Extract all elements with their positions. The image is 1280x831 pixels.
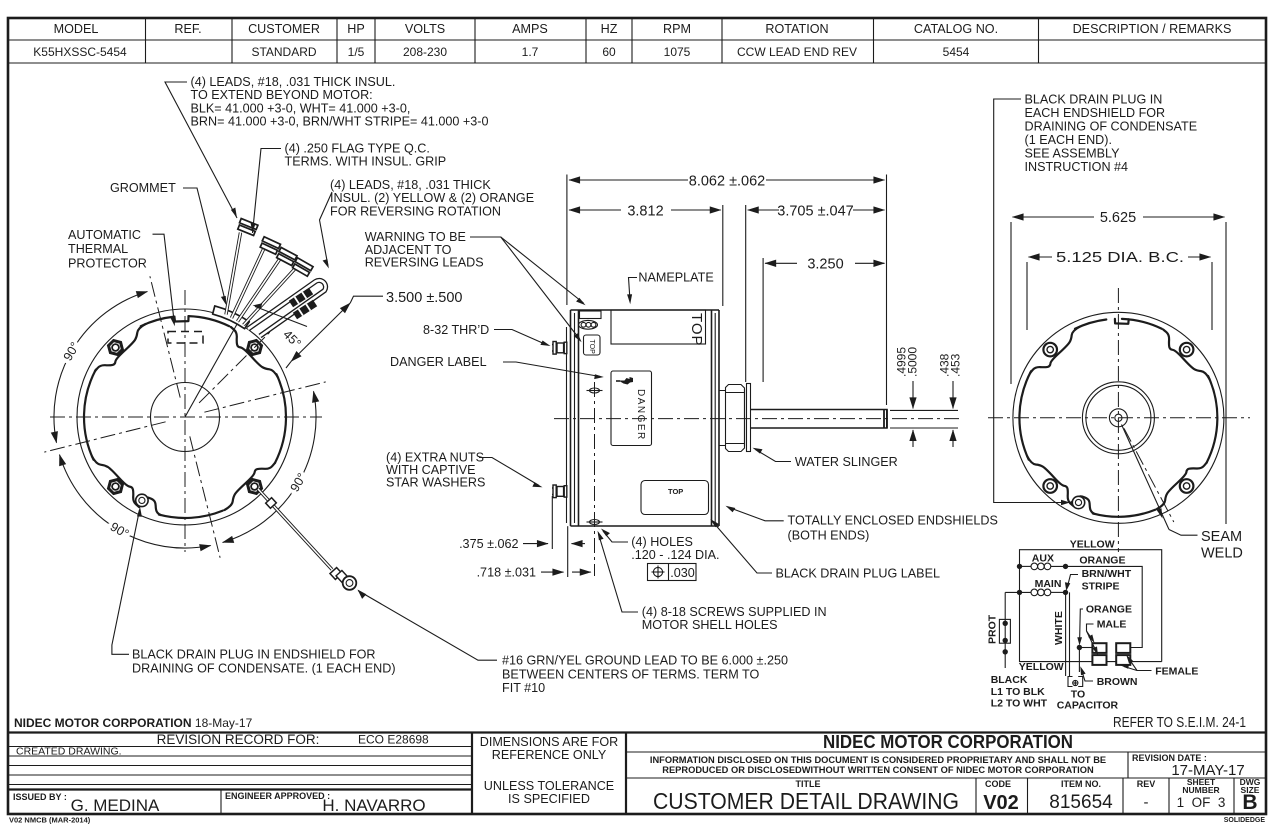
svg-text:INSUL. (2) YELLOW & (2) ORANGE: INSUL. (2) YELLOW & (2) ORANGE xyxy=(330,191,534,205)
svg-text:#16 GRN/YEL GROUND LEAD TO BE: #16 GRN/YEL GROUND LEAD TO BE 6.000 ±.25… xyxy=(502,654,788,668)
svg-text:CUSTOMER: CUSTOMER xyxy=(248,22,320,36)
svg-text:V02: V02 xyxy=(983,792,1019,814)
svg-text:PROTECTOR: PROTECTOR xyxy=(68,256,147,270)
svg-text:5.625: 5.625 xyxy=(1100,210,1136,226)
svg-text:REFER TO S.E.I.M. 24-1: REFER TO S.E.I.M. 24-1 xyxy=(1113,715,1246,731)
svg-text:AMPS: AMPS xyxy=(512,22,548,36)
svg-text:.375 ±.062: .375 ±.062 xyxy=(459,537,518,551)
svg-text:CREATED DRAWING.: CREATED DRAWING. xyxy=(16,746,122,758)
svg-text:NAMEPLATE: NAMEPLATE xyxy=(638,271,713,285)
svg-text:RPM: RPM xyxy=(663,22,691,36)
svg-text:SOLIDEDGE: SOLIDEDGE xyxy=(1224,817,1266,824)
svg-text:REPRODUCED OR DISCLOSEDWITHOUT: REPRODUCED OR DISCLOSEDWITHOUT WRITTEN C… xyxy=(662,765,1094,775)
svg-text:DRAINING OF CONDENSATE: DRAINING OF CONDENSATE xyxy=(1025,120,1198,134)
svg-text:INSTRUCTION #4: INSTRUCTION #4 xyxy=(1025,160,1129,174)
svg-text:BROWN: BROWN xyxy=(1097,676,1138,688)
svg-text:1.7: 1.7 xyxy=(522,45,539,59)
svg-text:TO EXTEND BEYOND MOTOR:: TO EXTEND BEYOND MOTOR: xyxy=(191,88,373,102)
svg-text:BLACK DRAIN PLUG LABEL: BLACK DRAIN PLUG LABEL xyxy=(776,567,940,581)
svg-text:.120 - .124 DIA.: .120 - .124 DIA. xyxy=(631,548,719,562)
svg-text:60: 60 xyxy=(602,45,616,59)
svg-text:DRAINING OF CONDENSATE. (1 EAC: DRAINING OF CONDENSATE. (1 EACH END) xyxy=(132,662,396,676)
svg-text:STANDARD: STANDARD xyxy=(251,45,316,59)
svg-text:WELD: WELD xyxy=(1201,546,1243,562)
svg-text:NIDEC MOTOR CORPORATION: NIDEC MOTOR CORPORATION xyxy=(823,731,1073,752)
svg-text:BLK= 41.000 +3-0, WHT= 41.000: BLK= 41.000 +3-0, WHT= 41.000 +3-0, xyxy=(191,101,411,115)
svg-text:3.705 ±.047: 3.705 ±.047 xyxy=(777,204,854,220)
svg-text:(4) .250 FLAG TYPE Q.C.: (4) .250 FLAG TYPE Q.C. xyxy=(285,142,430,156)
svg-text:815654: 815654 xyxy=(1049,792,1113,813)
svg-text:HP: HP xyxy=(347,22,365,36)
svg-text:FOR REVERSING ROTATION: FOR REVERSING ROTATION xyxy=(330,204,501,218)
svg-text:YELLOW: YELLOW xyxy=(1070,539,1115,551)
svg-text:ORANGE: ORANGE xyxy=(1086,604,1132,616)
svg-text:ORANGE: ORANGE xyxy=(1079,555,1125,567)
svg-text:GROMMET: GROMMET xyxy=(110,181,176,195)
svg-text:REF.: REF. xyxy=(174,22,201,36)
svg-text:8.062 ±.062: 8.062 ±.062 xyxy=(689,174,766,190)
svg-text:208-230: 208-230 xyxy=(403,45,447,59)
svg-text:INFORMATION DISCLOSED ON THIS: INFORMATION DISCLOSED ON THIS DOCUMENT I… xyxy=(650,755,1106,765)
svg-text:V02 NMCB (MAR-2014): V02 NMCB (MAR-2014) xyxy=(9,816,91,825)
svg-text:NIDEC MOTOR CORPORATION 18-May: NIDEC MOTOR CORPORATION 18-May-17 xyxy=(14,716,253,730)
svg-text:K55HXSSC-5454: K55HXSSC-5454 xyxy=(33,45,127,59)
svg-text:WATER SLINGER: WATER SLINGER xyxy=(795,455,898,469)
svg-text:VOLTS: VOLTS xyxy=(405,22,445,36)
svg-text:BETWEEN CENTERS OF TERMS. TERM: BETWEEN CENTERS OF TERMS. TERM TO xyxy=(502,668,759,682)
svg-text:(4) LEADS, #18, .031 THICK: (4) LEADS, #18, .031 THICK xyxy=(330,178,491,192)
svg-text:5454: 5454 xyxy=(943,45,970,59)
svg-text:L1 TO BLK: L1 TO BLK xyxy=(991,686,1045,698)
svg-text:3.500 ±.500: 3.500 ±.500 xyxy=(386,290,463,306)
svg-text:HZ: HZ xyxy=(601,22,618,36)
svg-text:.5000: .5000 xyxy=(906,347,920,377)
svg-text:.030: .030 xyxy=(670,566,695,580)
svg-text:1/5: 1/5 xyxy=(348,45,365,59)
svg-text:TOP: TOP xyxy=(588,340,595,355)
svg-text:EACH ENDSHIELD FOR: EACH ENDSHIELD FOR xyxy=(1025,106,1166,120)
svg-text:DANGER: DANGER xyxy=(635,389,646,441)
svg-text:(4) LEADS, #18, .031 THICK INS: (4) LEADS, #18, .031 THICK INSUL. xyxy=(191,75,396,89)
svg-text:3.250: 3.250 xyxy=(807,257,843,273)
svg-text:UNLESS TOLERANCE: UNLESS TOLERANCE xyxy=(484,779,614,793)
svg-text:G. MEDINA: G. MEDINA xyxy=(71,796,160,815)
svg-text:1 OF 3: 1 OF 3 xyxy=(1177,795,1226,810)
svg-text:IS SPECIFIED: IS SPECIFIED xyxy=(508,792,590,806)
svg-text:DANGER LABEL: DANGER LABEL xyxy=(390,355,487,369)
svg-text:BLACK: BLACK xyxy=(991,674,1028,686)
svg-text:BRN/WHT: BRN/WHT xyxy=(1082,568,1132,580)
svg-text:ECO E28698: ECO E28698 xyxy=(358,733,429,747)
svg-text:REV: REV xyxy=(1137,779,1156,789)
svg-text:CODE: CODE xyxy=(985,779,1011,789)
svg-text:ENGINEER APPROVED :: ENGINEER APPROVED : xyxy=(225,791,330,801)
svg-text:(4) HOLES: (4) HOLES xyxy=(631,535,693,549)
svg-text:TOP: TOP xyxy=(668,487,683,496)
svg-text:H. NAVARRO: H. NAVARRO xyxy=(322,796,425,815)
svg-text:PROT: PROT xyxy=(987,614,999,644)
svg-text:.453: .453 xyxy=(949,353,963,377)
svg-text:BRN= 41.000 +3-0, BRN/WHT STRI: BRN= 41.000 +3-0, BRN/WHT STRIPE= 41.000… xyxy=(191,115,489,129)
svg-text:CAPACITOR: CAPACITOR xyxy=(1057,700,1119,712)
svg-text:STAR WASHERS: STAR WASHERS xyxy=(386,476,485,490)
svg-text:ISSUED BY :: ISSUED BY : xyxy=(13,792,67,802)
svg-text:YELLOW: YELLOW xyxy=(1019,661,1064,673)
svg-text:SEE ASSEMBLY: SEE ASSEMBLY xyxy=(1025,147,1121,161)
svg-text:REFERENCE ONLY: REFERENCE ONLY xyxy=(492,748,607,762)
svg-text:ITEM NO.: ITEM NO. xyxy=(1061,779,1101,789)
svg-text:FIT #10: FIT #10 xyxy=(502,681,545,695)
svg-text:L2 TO WHT: L2 TO WHT xyxy=(991,698,1048,710)
svg-text:5.125 DIA. B.C.: 5.125 DIA. B.C. xyxy=(1056,250,1184,266)
svg-text:CATALOG NO.: CATALOG NO. xyxy=(914,22,998,36)
svg-text:BLACK DRAIN PLUG IN ENDSHIELD: BLACK DRAIN PLUG IN ENDSHIELD FOR xyxy=(132,648,376,662)
svg-text:B: B xyxy=(1242,791,1257,814)
svg-text:THERMAL: THERMAL xyxy=(68,242,128,256)
svg-text:DESCRIPTION / REMARKS: DESCRIPTION / REMARKS xyxy=(1073,22,1232,36)
svg-text:ROTATION: ROTATION xyxy=(765,22,828,36)
svg-text:8-32 THR’D: 8-32 THR’D xyxy=(423,323,489,337)
svg-text:MODEL: MODEL xyxy=(54,22,99,36)
svg-text:.718 ±.031: .718 ±.031 xyxy=(477,566,536,580)
svg-text:-: - xyxy=(1144,794,1149,811)
svg-text:MOTOR SHELL HOLES: MOTOR SHELL HOLES xyxy=(642,618,778,632)
svg-text:TERMS. WITH INSUL. GRIP: TERMS. WITH INSUL. GRIP xyxy=(285,155,447,169)
svg-text:(BOTH ENDS): (BOTH ENDS) xyxy=(788,529,870,543)
svg-text:(1 EACH END).: (1 EACH END). xyxy=(1025,133,1112,147)
svg-text:DIMENSIONS ARE FOR: DIMENSIONS ARE FOR xyxy=(480,735,619,749)
svg-text:FEMALE: FEMALE xyxy=(1155,666,1198,678)
svg-text:MAIN: MAIN xyxy=(1035,578,1062,590)
svg-text:NUMBER: NUMBER xyxy=(1182,785,1219,795)
svg-text:MALE: MALE xyxy=(1097,619,1127,631)
svg-text:TOP: TOP xyxy=(688,313,705,347)
svg-text:AUX: AUX xyxy=(1032,553,1054,565)
svg-text:REVERSING LEADS: REVERSING LEADS xyxy=(365,256,484,270)
svg-text:(4) 8-18 SCREWS SUPPLIED IN: (4) 8-18 SCREWS SUPPLIED IN xyxy=(642,605,827,619)
svg-text:AUTOMATIC: AUTOMATIC xyxy=(68,228,141,242)
svg-text:STRIPE: STRIPE xyxy=(1082,581,1120,593)
svg-text:WHITE: WHITE xyxy=(1053,611,1065,645)
svg-text:BLACK DRAIN PLUG IN: BLACK DRAIN PLUG IN xyxy=(1025,93,1163,107)
svg-text:1075: 1075 xyxy=(664,45,691,59)
svg-text:3.812: 3.812 xyxy=(627,204,663,220)
svg-text:REVISION RECORD FOR:: REVISION RECORD FOR: xyxy=(157,732,320,747)
svg-text:SEAM: SEAM xyxy=(1201,529,1242,545)
svg-text:TOTALLY ENCLOSED ENDSHIELDS: TOTALLY ENCLOSED ENDSHIELDS xyxy=(788,514,998,528)
svg-text:CCW LEAD END REV: CCW LEAD END REV xyxy=(737,45,857,59)
svg-text:CUSTOMER DETAIL DRAWING: CUSTOMER DETAIL DRAWING xyxy=(653,788,959,814)
